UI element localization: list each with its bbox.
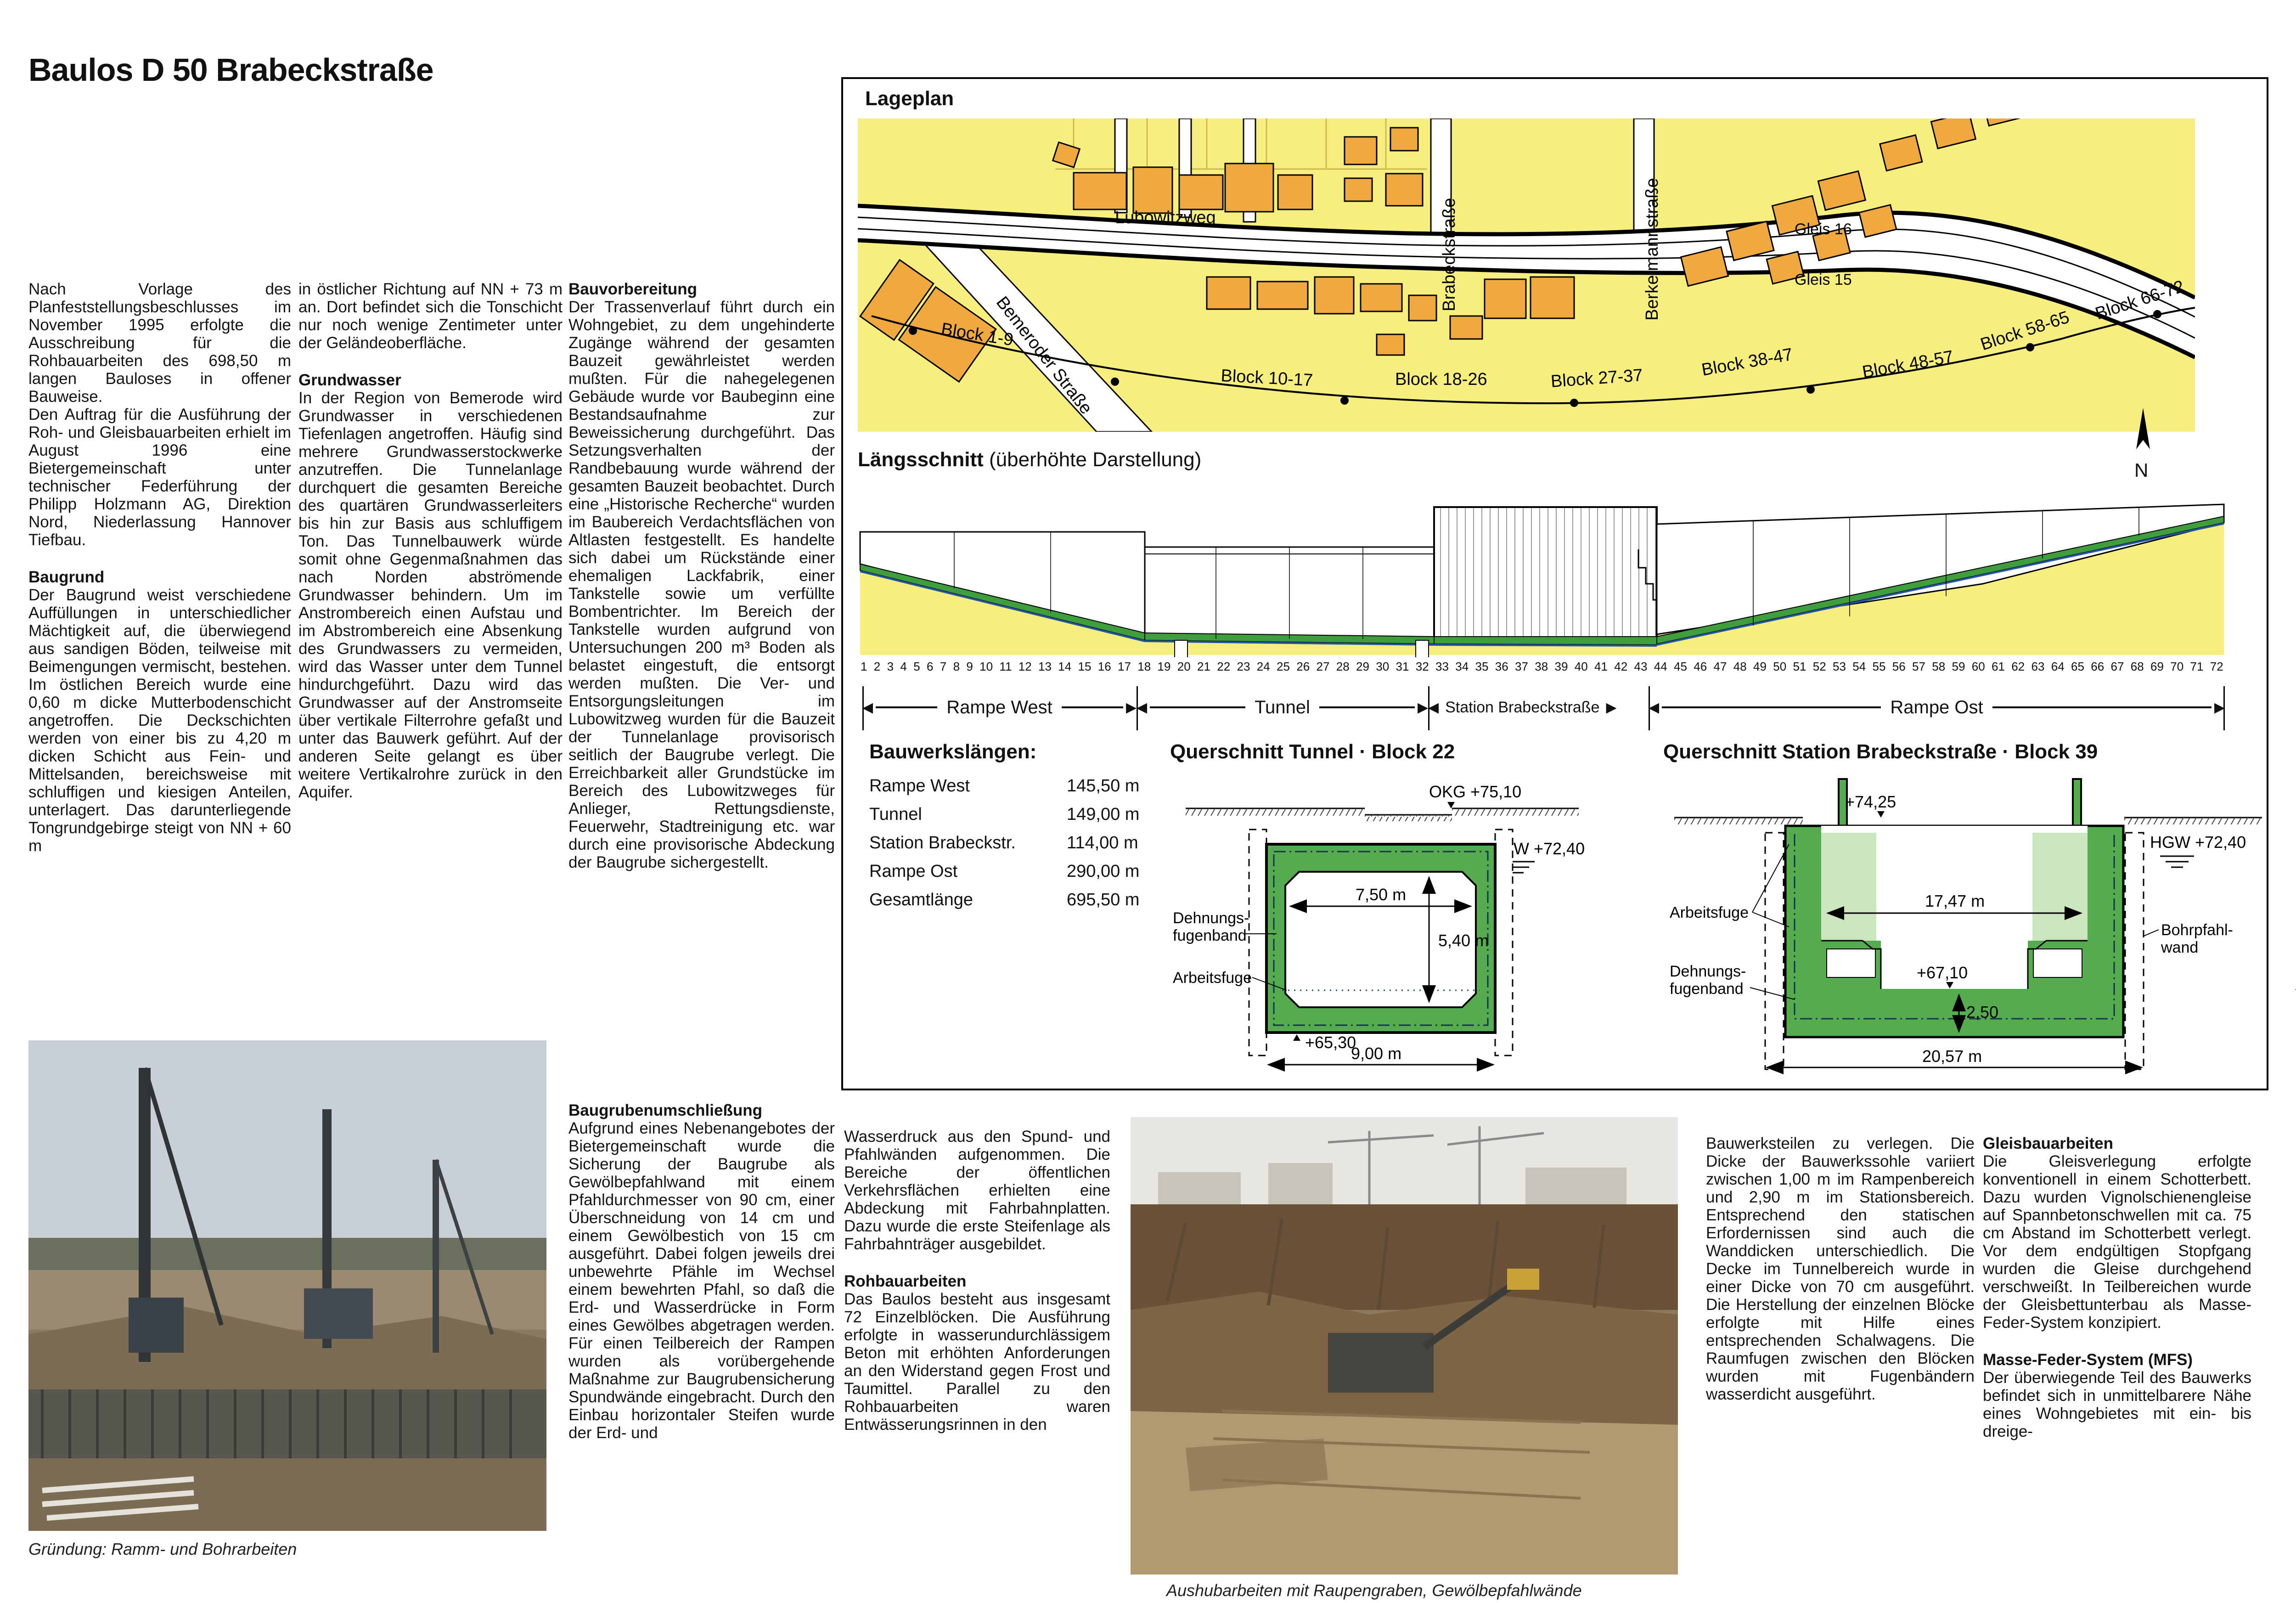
block-number: 62 (2011, 660, 2025, 675)
text-column-3: Bauvorbereitung Der Trassenverlauf führt… (568, 280, 835, 871)
heading-baugrund: Baugrund (28, 568, 291, 586)
laengsschnitt-drawing (858, 480, 2226, 657)
block-number: 41 (1594, 660, 1608, 675)
laengsschnitt-title: Längsschnitt (überhöhte Darstellung) (858, 448, 1201, 471)
row-label: Station Brabeckstr. (869, 833, 1067, 853)
rohbauarbeiten-body: Das Baulos besteht aus insgesamt 72 Einz… (844, 1290, 1110, 1434)
block-number: 28 (1336, 660, 1350, 675)
dehnungsfugenband-label-2: fugenband (1173, 927, 1247, 944)
table-row: Rampe Ost 290,00 m (869, 862, 1139, 890)
section-tunnel: ◀Tunnel▶ (1137, 694, 1428, 720)
grundwasser-body: In der Region von Bemerode wird Grundwas… (298, 389, 563, 801)
baugrund-body-cont: in östlicher Richtung auf NN + 73 m an. … (298, 280, 563, 352)
block-number: 57 (1912, 660, 1925, 675)
street-label-brabeckstrasse: Brabeckstraße (1440, 198, 1459, 311)
block-number: 67 (2111, 660, 2124, 675)
station-structure (1434, 507, 1657, 640)
intro-paragraph-1: Nach Vorlage des Planfeststellungsbeschl… (28, 280, 291, 406)
section-label: Tunnel (1248, 697, 1317, 718)
text-column-6: Gleisbauarbeiten Die Gleisverlegung erfo… (1983, 1135, 2251, 1440)
heading-gleisbauarbeiten: Gleisbauarbeiten (1983, 1135, 2251, 1152)
block-number: 61 (1992, 660, 2005, 675)
block-number: 53 (1833, 660, 1846, 675)
photo-middle-art (1131, 1117, 1678, 1575)
photo-aushubarbeiten (1131, 1117, 1678, 1575)
north-label: N (2134, 459, 2148, 481)
block-number: 2 (874, 660, 880, 675)
label-gleis-16: Gleis 16 (1795, 220, 1852, 238)
photo-ramm-und-bohrarbeiten (28, 1040, 546, 1531)
table-row: Rampe West 145,50 m (869, 776, 1139, 805)
block-number: 8 (953, 660, 960, 675)
block-number: 49 (1753, 660, 1767, 675)
street-label-berkelmannstrasse: Berkelmannstraße (1643, 178, 1662, 321)
ground-surface (1674, 818, 2262, 824)
table-row: Gesamtlänge 695,50 m (869, 890, 1139, 919)
label-gleis-15: Gleis 15 (1795, 271, 1852, 288)
dim-inner-width: 17,47 m (1925, 892, 1985, 910)
block-number: 59 (1952, 660, 1965, 675)
block-number: 35 (1475, 660, 1489, 675)
block-number: 58 (1932, 660, 1945, 675)
block-number: 50 (1773, 660, 1786, 675)
querschnitt-tunnel-title: Querschnitt Tunnel · Block 22 (1170, 740, 1455, 763)
block-number: 51 (1793, 660, 1806, 675)
block-number: 33 (1435, 660, 1449, 675)
heading-baugrubenumschliessung: Baugrubenumschließung (568, 1101, 835, 1119)
north-arrow-icon (2132, 408, 2155, 459)
block-number: 19 (1158, 660, 1171, 675)
block-number: 22 (1217, 660, 1230, 675)
dim-inner-width: 7,50 m (1356, 885, 1406, 904)
block-number: 10 (979, 660, 993, 675)
block-number: 11 (999, 660, 1012, 675)
block-number: 65 (2071, 660, 2084, 675)
table-row: Tunnel 149,00 m (869, 805, 1139, 833)
caption-photo-left: Gründung: Ramm- und Bohrarbeiten (28, 1540, 297, 1559)
block-number: 15 (1078, 660, 1092, 675)
photo-left-art (28, 1040, 546, 1531)
block-number: 66 (2091, 660, 2104, 675)
rohbauarbeiten-body-cont: Bauwerksteilen zu verlegen. Die Dicke de… (1706, 1135, 1975, 1403)
bauvorbereitung-body: Der Trassenverlauf führt durch ein Wohng… (568, 298, 835, 871)
block-number: 48 (1733, 660, 1747, 675)
mfs-body: Der überwiegende Teil des Bauwerks befin… (1983, 1369, 2251, 1440)
row-value: 149,00 m (1067, 805, 1139, 824)
block-number: 39 (1555, 660, 1568, 675)
dehnungsfugenband-label-1: Dehnungs- (1670, 963, 1746, 980)
block-number: 1 (861, 660, 867, 675)
street-label-lubowitzweg: Lubowitzweg (1115, 208, 1216, 227)
block-number: 40 (1575, 660, 1588, 675)
block-number: 20 (1177, 660, 1191, 675)
block-number: 71 (2190, 660, 2204, 675)
block-number: 29 (1356, 660, 1369, 675)
block-number: 18 (1137, 660, 1151, 675)
section-rampe-ost: ◀Rampe Ost▶ (1649, 694, 2225, 720)
caption-photo-middle: Aushubarbeiten mit Raupengraben, Gewölbe… (1166, 1581, 1582, 1600)
page-title: Baulos D 50 Brabeckstraße (28, 51, 433, 88)
dim-outer-width: 20,57 m (1922, 1047, 1982, 1066)
dim-outer-width: 9,00 m (1351, 1044, 1401, 1063)
dim-floor-thickness: 2,50 (1966, 1003, 1998, 1022)
block-number: 56 (1892, 660, 1906, 675)
section-label: Rampe Ost (1884, 697, 1989, 718)
text-column-3b: Baugrubenumschließung Aufgrund eines Neb… (568, 1101, 835, 1442)
block-number: 38 (1535, 660, 1548, 675)
laengsschnitt-subtitle: (überhöhte Darstellung) (984, 448, 1201, 471)
block-number: 45 (1674, 660, 1687, 675)
floor-level-label: +67,10 (1917, 963, 1968, 982)
row-value: 114,00 m (1067, 833, 1138, 853)
ground-surface (1186, 808, 1579, 821)
block-number: 36 (1495, 660, 1508, 675)
row-label: Rampe West (869, 776, 1067, 796)
block-number: 70 (2170, 660, 2183, 675)
block-number: 27 (1317, 660, 1330, 675)
water-symbol (2160, 856, 2194, 867)
block-number: 37 (1515, 660, 1528, 675)
block-number: 23 (1237, 660, 1250, 675)
text-column-1: Nach Vorlage des Planfeststellungsbeschl… (28, 280, 291, 855)
bauwerkslaengen-title: Bauwerkslängen: (869, 740, 1036, 763)
block-number: 12 (1019, 660, 1032, 675)
text-column-5: Bauwerksteilen zu verlegen. Die Dicke de… (1706, 1135, 1975, 1403)
hgw-label: HGW +72,40 (2150, 833, 2246, 852)
block-number: 46 (1694, 660, 1707, 675)
querschnitt-station-title: Querschnitt Station Brabeckstraße · Bloc… (1663, 740, 2098, 763)
bohrpfahlwand-label-1: Bohrpfahl- (2161, 921, 2233, 939)
block-number: 26 (1296, 660, 1310, 675)
block-number: 3 (887, 660, 894, 675)
heading-bauvorbereitung: Bauvorbereitung (568, 280, 835, 298)
block-number: 25 (1277, 660, 1290, 675)
heading-mfs: Masse-Feder-System (MFS) (1983, 1351, 2251, 1369)
block-number: 64 (2051, 660, 2065, 675)
laengsschnitt-block-numbers: 1234567891011121314151617181920212223242… (861, 660, 2223, 675)
gleisbauarbeiten-body: Die Gleisverlegung erfolgte konventionel… (1983, 1152, 2251, 1332)
dehnungsfugenband-label-2: fugenband (1670, 980, 1744, 998)
block-number: 60 (1972, 660, 1985, 675)
document-page: Baulos D 50 Brabeckstraße Nach Vorlage d… (0, 0, 2296, 1603)
row-label: Tunnel (869, 805, 1067, 824)
bauwerkslaengen-table: Rampe West 145,50 m Tunnel 149,00 m Stat… (869, 776, 1139, 919)
block-number: 42 (1614, 660, 1627, 675)
block-number: 31 (1396, 660, 1409, 675)
lageplan-title: Lageplan (865, 87, 954, 110)
section-label: Rampe West (940, 697, 1058, 718)
block-number: 32 (1416, 660, 1429, 675)
bohrpfahlwand-label-2: wand (2161, 939, 2198, 956)
baugrubenumschliessung-body: Aufgrund eines Nebenangebotes der Bieter… (568, 1119, 835, 1442)
dehnungsfugenband-label-1: Dehnungs- (1173, 909, 1249, 927)
block-number: 69 (2150, 660, 2164, 675)
section-station: ◀Station Brabeckstraße▶ (1428, 694, 1649, 720)
okg-label: OKG +75,10 (1429, 782, 1521, 801)
block-number: 6 (927, 660, 933, 675)
block-number: 63 (2032, 660, 2045, 675)
intro-paragraph-2: Den Auftrag für die Ausführung der Roh- … (28, 406, 291, 549)
floor-level-label: +65,30 (1305, 1033, 1356, 1052)
laengsschnitt-title-bold: Längsschnitt (858, 448, 984, 471)
section-label: Station Brabeckstraße (1439, 699, 1606, 717)
baugrubenumschliessung-body-cont: Wasserdruck aus den Spund- und Pfahlwänd… (844, 1128, 1110, 1253)
block-number: 14 (1058, 660, 1071, 675)
row-label: Rampe Ost (869, 862, 1067, 881)
block-number: 7 (940, 660, 946, 675)
block-number: 52 (1813, 660, 1826, 675)
row-label: Gesamtlänge (869, 890, 1067, 910)
text-column-2: in östlicher Richtung auf NN + 73 m an. … (298, 280, 563, 801)
block-number: 55 (1873, 660, 1886, 675)
block-number: 5 (913, 660, 920, 675)
baugrund-body: Der Baugrund weist verschiedene Auffüllu… (28, 586, 291, 855)
block-number: 9 (966, 660, 973, 675)
block-number: 43 (1634, 660, 1648, 675)
block-number: 34 (1455, 660, 1469, 675)
heading-rohbauarbeiten: Rohbauarbeiten (844, 1272, 1110, 1290)
row-value: 145,50 m (1067, 776, 1139, 796)
text-column-4: Wasserdruck aus den Spund- und Pfahlwänd… (844, 1128, 1110, 1434)
block-number: 54 (1852, 660, 1866, 675)
block-number: 17 (1118, 660, 1131, 675)
block-number: 68 (2131, 660, 2144, 675)
block-number: 4 (900, 660, 906, 675)
row-value: 290,00 m (1067, 862, 1139, 881)
querschnitt-station-drawing: +74,25 HGW +72,40 17,47 m +67,10 2,50 20… (1665, 775, 2270, 1084)
block-number: 13 (1038, 660, 1052, 675)
table-row: Station Brabeckstr. 114,00 m (869, 833, 1139, 862)
row-value: 695,50 m (1067, 890, 1139, 910)
lageplan-map: Lubowitzweg Bemeroder Straße Brabeckstra… (858, 119, 2195, 432)
block-label-18-26: Block 18-26 (1395, 370, 1487, 389)
block-number: 24 (1257, 660, 1270, 675)
querschnitt-tunnel-drawing: OKG +75,10 HGW +72,40 7,50 m 5,40 m +65,… (1172, 775, 1593, 1078)
arbeitsfuge-label: Arbeitsfuge (1173, 969, 1252, 987)
block-number: 16 (1098, 660, 1111, 675)
block-number: 30 (1376, 660, 1389, 675)
section-rampe-west: ◀Rampe West▶ (862, 694, 1137, 720)
block-number: 21 (1197, 660, 1210, 675)
block-number: 44 (1654, 660, 1667, 675)
dim-inner-height: 5,40 m (1438, 931, 1489, 950)
block-number: 72 (2210, 660, 2223, 675)
arbeitsfuge-label: Arbeitsfuge (1670, 904, 1749, 921)
heading-grundwasser: Grundwasser (298, 371, 563, 389)
block-number: 47 (1714, 660, 1727, 675)
top-level-label: +74,25 (1845, 792, 1896, 811)
